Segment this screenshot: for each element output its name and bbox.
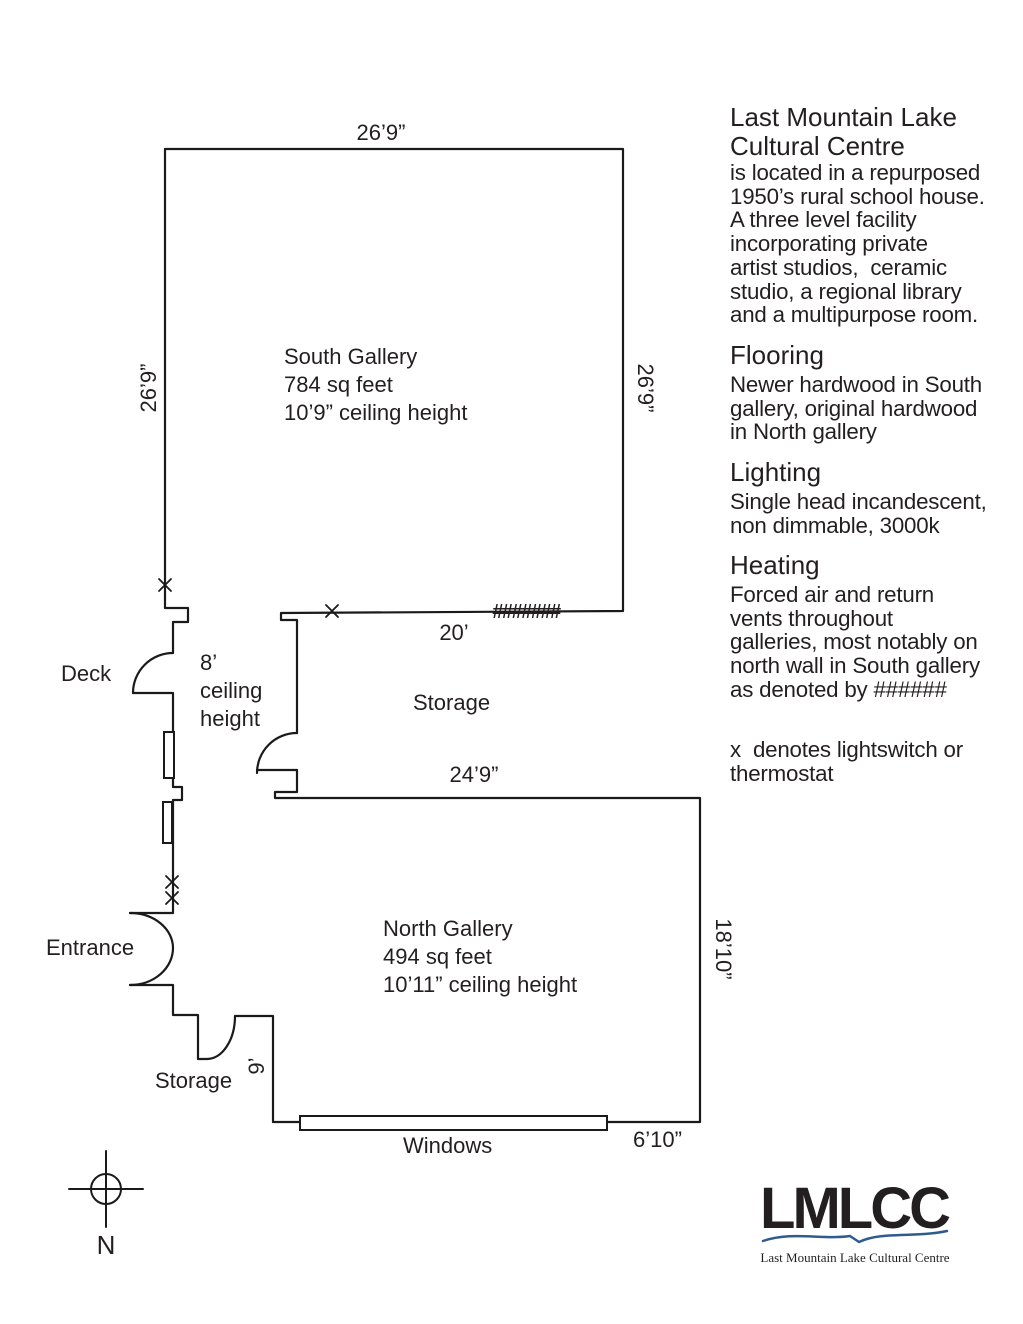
storage-mid-label: Storage (413, 690, 490, 715)
dim-south-right: 26’9” (633, 364, 658, 413)
north-compass (69, 1151, 143, 1227)
deck-window (164, 732, 174, 778)
deck-window-2 (163, 802, 172, 843)
floorplan-page: ####### 26’9” 26’9” 26’9” 20’ 24’9” 18’1… (0, 0, 1023, 1324)
dim-south-top: 26’9” (357, 120, 406, 145)
north-gallery-name: North Gallery (383, 916, 513, 941)
mid-storage-door-arc (257, 733, 297, 773)
entrance-label: Entrance (46, 935, 134, 960)
left-exterior-wall-upper (165, 149, 188, 653)
north-gallery-ceiling: 10’11” ceiling height (383, 972, 577, 997)
corridor-line-2: ceiling (200, 678, 262, 703)
south-gallery-walls (165, 149, 623, 733)
corridor-line-3: height (200, 706, 260, 731)
south-gallery-ceiling: 10’9” ceiling height (284, 400, 467, 425)
south-gallery-area: 784 sq feet (284, 372, 393, 397)
lmlcc-logo: LMLCC Last Mountain Lake Cultural Centre (760, 1176, 950, 1265)
dim-north-right: 18’10” (711, 918, 736, 979)
compass-north-letter: N (97, 1230, 116, 1260)
north-gallery-label: North Gallery 494 sq feet 10’11” ceiling… (383, 916, 577, 997)
dim-north-top: 24’9” (450, 762, 499, 787)
entrance-double-door-arcs (130, 913, 173, 985)
dim-storage-depth: 9’ (244, 1057, 269, 1074)
heating-heading: Heating (730, 551, 998, 580)
heating-text: Forced air and return vents throughout g… (730, 583, 998, 702)
corridor-line-1: 8’ (200, 650, 217, 675)
lightswitch-marker (326, 605, 338, 617)
intro-text: is located in a repurposed 1950’s rural … (730, 161, 998, 327)
flooring-heading: Flooring (730, 341, 998, 370)
dim-windows: 6’10” (633, 1127, 682, 1152)
lighting-text: Single head incandescent, non dimmable, … (730, 490, 998, 537)
deck-door-arc (133, 653, 173, 693)
left-exterior-wall-lower (130, 985, 207, 1059)
lighting-heading: Lighting (730, 458, 998, 487)
lightswitch-markers (159, 579, 338, 904)
north-windows-band (300, 1116, 607, 1130)
corridor-ceiling-label: 8’ ceiling height (200, 650, 262, 731)
bottom-storage-door-arc (207, 1016, 235, 1059)
windows-label: Windows (403, 1133, 492, 1158)
south-gallery-label: South Gallery 784 sq feet 10’9” ceiling … (284, 344, 467, 425)
logo-acronym-text: LMLCC (760, 1176, 950, 1241)
storage-bottom-label: Storage (155, 1068, 232, 1093)
heating-vent-hash-marks: ####### (492, 601, 561, 623)
south-gallery-name: South Gallery (284, 344, 417, 369)
deck-label: Deck (61, 661, 112, 686)
flooring-text: Newer hardwood in South gallery, origina… (730, 373, 998, 444)
logo-caption-text: Last Mountain Lake Cultural Centre (760, 1250, 949, 1265)
legend-text: x denotes lightswitch or thermostat (730, 738, 998, 785)
page-title: Last Mountain Lake Cultural Centre (730, 103, 998, 161)
north-gallery-area: 494 sq feet (383, 944, 492, 969)
dim-storage-width: 20’ (439, 620, 468, 645)
dim-south-left: 26’9” (136, 364, 161, 413)
